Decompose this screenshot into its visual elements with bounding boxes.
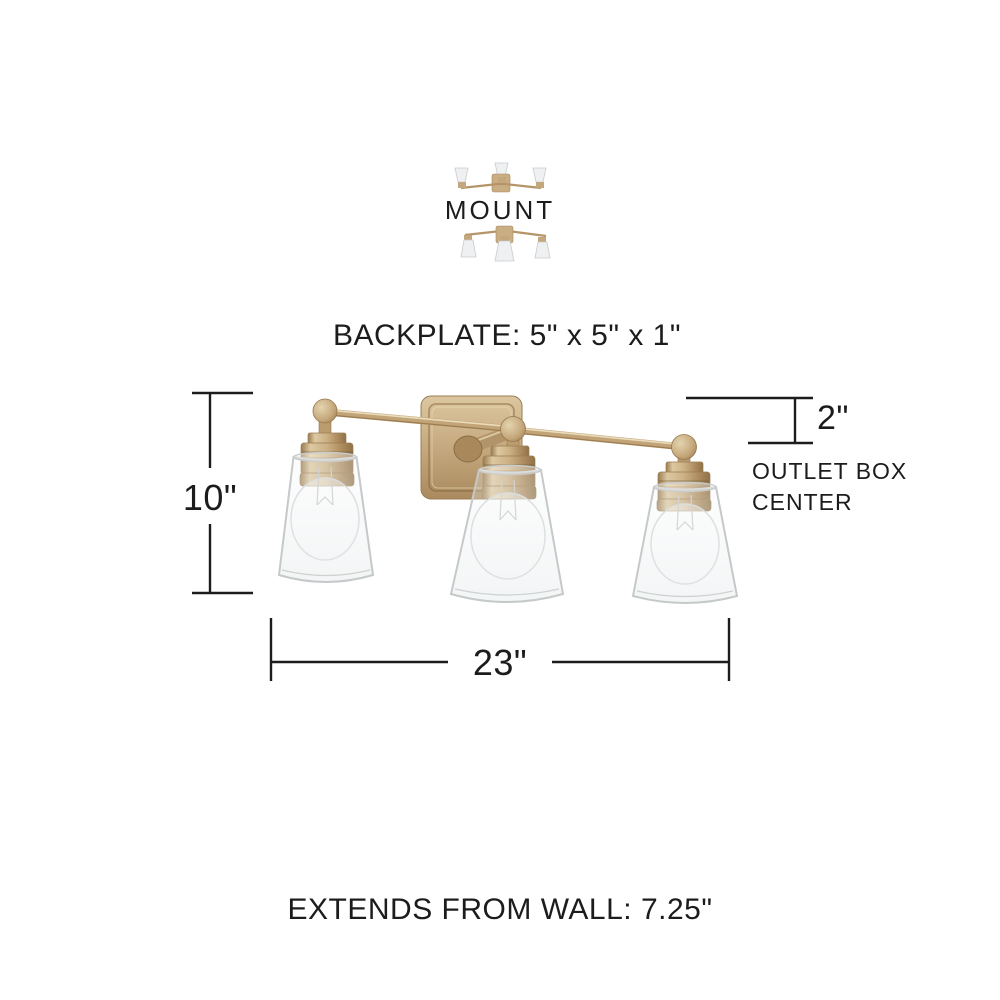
outlet-box-label-line2: CENTER xyxy=(752,487,907,518)
outlet-box-label-line1: OUTLET BOX xyxy=(752,456,907,487)
product-dimension-diagram: MOUNT BACKPLATE: 5" x 5" x 1" 10" 2" OUT… xyxy=(0,0,1000,1000)
right-glass-shade xyxy=(633,483,737,604)
outlet-offset-dimension-line xyxy=(686,398,813,443)
extends-from-wall-label: EXTENDS FROM WALL: 7.25" xyxy=(288,893,713,927)
outlet-offset-dimension-label: 2" xyxy=(817,399,849,438)
mount-up-thumbnail xyxy=(455,163,546,192)
right-lamp xyxy=(633,435,737,604)
outlet-box-center-label: OUTLET BOX CENTER xyxy=(752,456,907,518)
width-dimension-label: 23" xyxy=(473,642,527,684)
left-lamp xyxy=(279,399,373,582)
backplate-dimension-label: BACKPLATE: 5" x 5" x 1" xyxy=(333,319,681,353)
mount-down-thumbnail xyxy=(461,226,550,261)
left-glass-shade xyxy=(279,453,373,583)
mount-label: MOUNT xyxy=(445,195,555,226)
fixture-illustration xyxy=(279,396,737,603)
height-dimension-label: 10" xyxy=(183,477,237,519)
